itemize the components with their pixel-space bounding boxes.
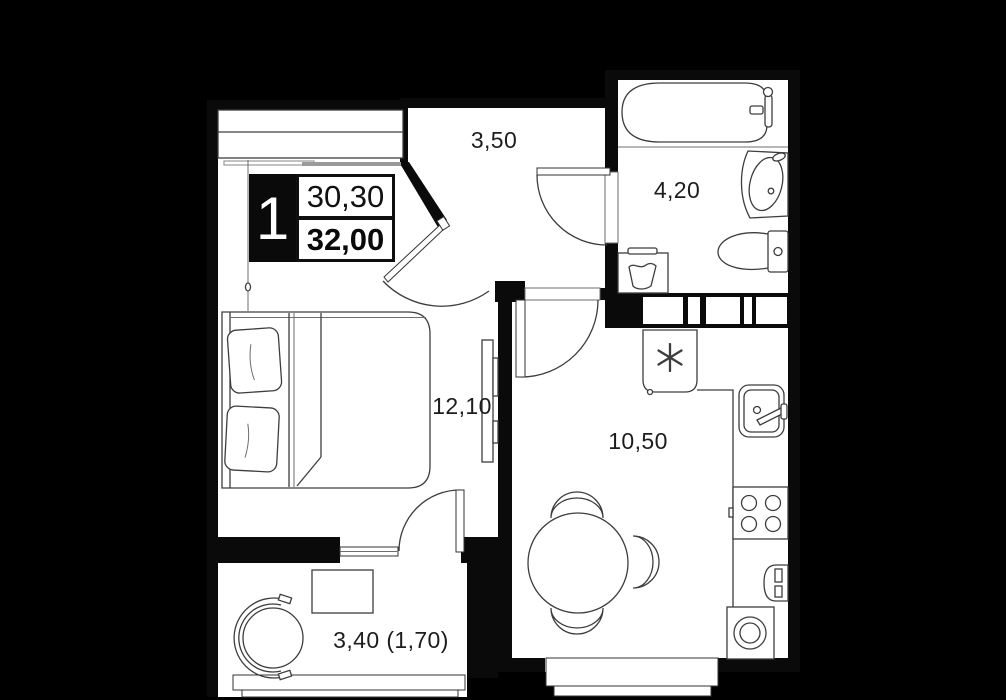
room-label-kitchen: 10,50 [586, 428, 690, 454]
apartment-badge: 1 30,30 32,00 [249, 174, 395, 262]
refrigerator [643, 330, 697, 395]
balcony-wall-left [207, 537, 340, 563]
bathroom-left-wall-upper [605, 80, 618, 172]
stove-burner [742, 517, 757, 532]
bathroom-door-leaf [537, 168, 610, 175]
kitchen-top-wall-segment [600, 288, 618, 300]
toilet-flush-button [774, 248, 782, 256]
stove [729, 487, 788, 539]
wardrobe [218, 110, 403, 166]
hallway-top-wall [400, 98, 607, 108]
radiator [764, 565, 788, 601]
total-area-value: 32,00 [296, 218, 395, 262]
tv-bracket [493, 421, 498, 443]
room-label-living-room: 12,10 [410, 393, 514, 419]
left-exterior-wall [207, 100, 218, 697]
kitchen-sink [739, 385, 787, 437]
balcony-wall-right [461, 537, 498, 563]
apartment-number: 1 [249, 174, 296, 262]
kitchen-bottom-wall-right [717, 658, 800, 672]
stove-burner [766, 496, 781, 511]
refrigerator-hinge [648, 390, 653, 395]
stove-burner [766, 517, 781, 532]
kitchen-window [546, 658, 718, 696]
right-exterior-wall [788, 70, 800, 672]
living-area-value: 30,30 [296, 174, 395, 218]
armchair-seat [243, 608, 303, 668]
bathroom-top-wall [605, 70, 800, 80]
balcony-door-window-sill [340, 547, 398, 556]
room-label-bathroom: 4,20 [637, 177, 717, 203]
kitchen-bottom-wall-left [498, 658, 545, 672]
pillow [227, 327, 282, 393]
floor-plan-drawing [0, 0, 1006, 700]
kitchen-door-leaf [516, 300, 525, 377]
dining-table [528, 513, 628, 613]
room-label-balcony: 3,40 (1,70) [309, 627, 473, 653]
wardrobe-rail [302, 162, 401, 166]
stove-knob [729, 508, 733, 517]
bedroom-top-wall [207, 100, 405, 110]
pillow [224, 406, 279, 473]
laundry-basket [618, 248, 668, 293]
washing-machine [727, 607, 774, 659]
balcony-door-leaf [456, 490, 464, 552]
vent-shaft-openings [643, 297, 787, 324]
kitchen-sink-drain [754, 407, 761, 414]
room-label-hallway: 3,50 [454, 127, 534, 153]
balcony-right-wall [467, 563, 498, 678]
kitchen-door-corner-wall [495, 281, 525, 302]
washbasin [741, 151, 788, 218]
floor-plan: 1 30,30 32,00 3,50 4,20 12,10 10,50 3,40… [0, 0, 1006, 700]
double-bed [222, 312, 430, 488]
stove-burner [742, 496, 757, 511]
apartment-areas: 30,30 32,00 [296, 174, 395, 262]
bathroom-left-wall-lower [605, 243, 618, 293]
laundry-basket-handle [628, 248, 657, 254]
tv-bracket [493, 358, 498, 396]
kitchen-left-wall [498, 302, 512, 672]
washbasin-drain [768, 188, 774, 194]
bathtub [622, 83, 773, 142]
